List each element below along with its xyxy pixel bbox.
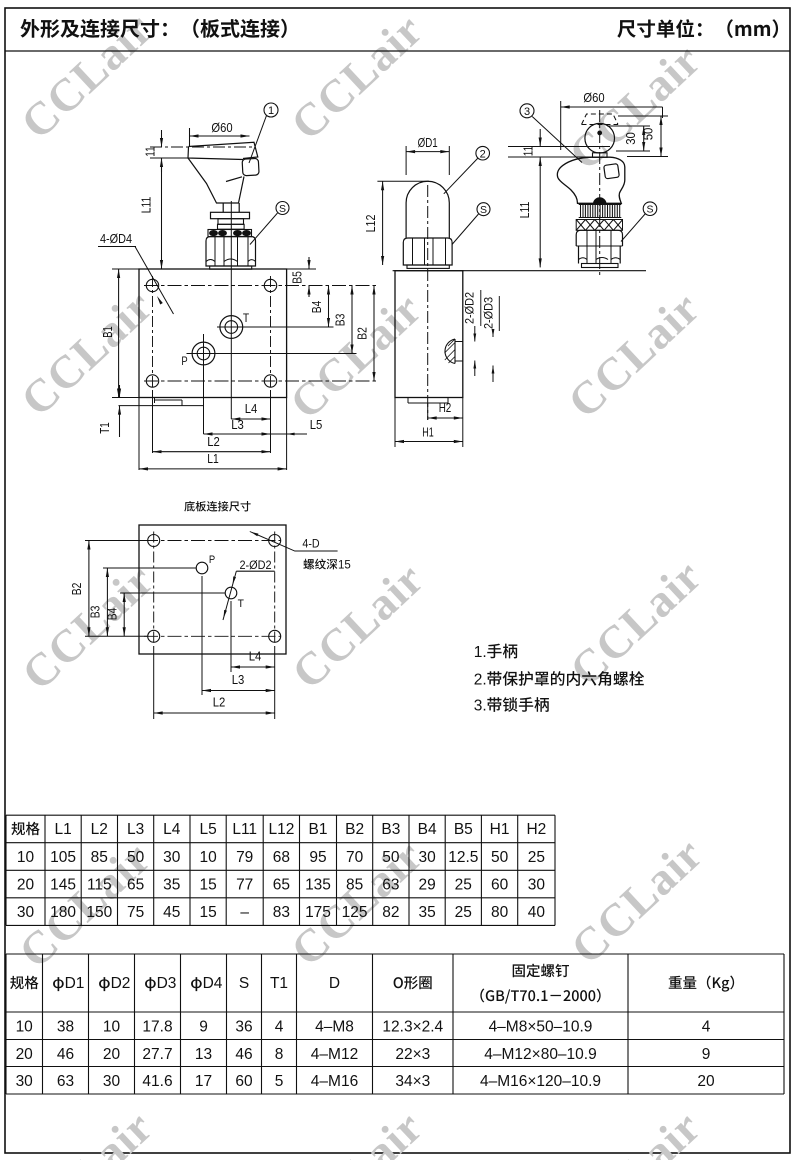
svg-text:L3: L3 [232,673,245,687]
svg-text:45: 45 [163,904,180,921]
svg-text:CCLair: CCLair [558,282,709,428]
svg-text:20: 20 [17,877,35,894]
svg-text:4–M12×80–10.9: 4–M12×80–10.9 [484,1046,596,1063]
svg-text:125: 125 [342,904,368,921]
svg-text:135: 135 [305,877,331,894]
svg-text:P: P [181,356,188,368]
svg-text:H1: H1 [490,821,510,838]
svg-text:77: 77 [236,877,253,894]
svg-text:4–M12: 4–M12 [311,1046,358,1063]
svg-text:CCLair: CCLair [281,1101,432,1160]
svg-text:20: 20 [697,1073,715,1090]
svg-text:35: 35 [163,877,180,894]
svg-text:50: 50 [642,128,656,141]
svg-text:50: 50 [382,849,400,866]
svg-text:75: 75 [127,904,144,921]
svg-text:50: 50 [491,849,509,866]
svg-text:30: 30 [418,849,436,866]
svg-text:20: 20 [103,1046,121,1063]
svg-text:L3: L3 [127,821,144,838]
svg-text:B2: B2 [356,327,370,340]
svg-text:B5: B5 [454,821,473,838]
svg-text:P: P [209,554,215,566]
svg-text:2-ØD2: 2-ØD2 [463,292,477,324]
svg-text:B3: B3 [381,821,400,838]
svg-text:60: 60 [235,1073,253,1090]
svg-text:29: 29 [418,877,435,894]
svg-text:4-D: 4-D [302,537,319,551]
svg-text:L5: L5 [310,418,323,432]
svg-text:10: 10 [16,1018,34,1035]
svg-text:2.: 2. [474,672,487,689]
svg-text:30: 30 [16,1073,34,1090]
svg-text:B1: B1 [101,326,115,338]
svg-text:S: S [480,204,487,216]
svg-text:CCLair: CCLair [559,1101,710,1160]
svg-text:L1: L1 [54,821,71,838]
svg-text:S: S [646,204,653,216]
svg-text:B4: B4 [310,301,324,314]
svg-text:CCLair: CCLair [560,550,711,696]
svg-text:H1: H1 [422,426,434,440]
svg-text:80: 80 [491,904,509,921]
svg-text:13: 13 [195,1046,212,1063]
svg-text:B4: B4 [418,821,437,838]
svg-text:12.5: 12.5 [448,849,478,866]
svg-text:D1: D1 [65,975,85,992]
svg-text:9: 9 [702,1046,711,1063]
svg-text:79: 79 [236,849,253,866]
svg-text:115: 115 [87,877,112,894]
svg-text:S: S [279,203,286,215]
svg-text:4–M16: 4–M16 [311,1073,358,1090]
svg-text:B2: B2 [345,821,364,838]
svg-text:9: 9 [199,1018,208,1035]
svg-text:3.: 3. [474,698,487,715]
svg-text:30: 30 [17,904,35,921]
svg-text:25: 25 [528,849,545,866]
svg-text:2-ØD2: 2-ØD2 [239,558,271,572]
svg-text:H2: H2 [526,821,546,838]
svg-text:175: 175 [305,904,331,921]
svg-text:L4: L4 [245,402,258,416]
svg-text:L12: L12 [364,215,378,233]
svg-text:Ø60: Ø60 [211,121,232,135]
svg-text:82: 82 [382,904,399,921]
svg-text:10: 10 [17,849,35,866]
svg-text:B1: B1 [309,821,328,838]
svg-text:17: 17 [195,1073,212,1090]
svg-text:B3: B3 [334,314,348,327]
svg-text:30: 30 [624,132,638,145]
svg-text:1: 1 [268,105,274,117]
svg-text:L2: L2 [213,696,226,710]
svg-text:4–M16×120–10.9: 4–M16×120–10.9 [480,1073,601,1090]
svg-text:12.3×2.4: 12.3×2.4 [382,1018,443,1035]
svg-text:27.7: 27.7 [142,1046,172,1063]
svg-text:15: 15 [199,904,216,921]
svg-text:CCLair: CCLair [280,283,431,429]
svg-text:83: 83 [273,904,290,921]
svg-text:CCLair: CCLair [281,4,432,150]
svg-text:L1: L1 [207,452,219,466]
svg-text:25: 25 [455,904,472,921]
svg-text:L4: L4 [163,821,181,838]
svg-text:L4: L4 [249,650,262,664]
svg-text:145: 145 [50,877,76,894]
svg-text:105: 105 [50,849,76,866]
svg-text:Ø60: Ø60 [583,91,604,105]
svg-text:B2: B2 [70,583,84,596]
svg-text:36: 36 [235,1018,252,1035]
svg-text:H2: H2 [439,401,452,415]
svg-text:41.6: 41.6 [142,1073,172,1090]
svg-text:46: 46 [235,1046,252,1063]
svg-text:46: 46 [57,1046,74,1063]
svg-text:68: 68 [273,849,290,866]
svg-text:63: 63 [57,1073,74,1090]
svg-text:180: 180 [50,904,76,921]
svg-text:25: 25 [455,877,472,894]
svg-text:4-ØD4: 4-ØD4 [100,232,132,246]
svg-text:10: 10 [199,849,217,866]
svg-text:L5: L5 [199,821,216,838]
svg-text:40: 40 [528,904,546,921]
svg-text:L11: L11 [232,821,257,838]
svg-text:CCLair: CCLair [282,553,433,699]
svg-text:B5: B5 [291,271,305,284]
svg-text:5: 5 [275,1073,284,1090]
svg-text:B4: B4 [106,608,120,621]
svg-text:4–M8×50–10.9: 4–M8×50–10.9 [489,1018,593,1035]
svg-text:L11: L11 [140,197,154,214]
svg-text:CCLair: CCLair [12,554,163,700]
svg-text:150: 150 [86,904,112,921]
svg-text:CCLair: CCLair [11,1101,162,1160]
svg-text:2-ØD3: 2-ØD3 [482,297,496,329]
svg-text:85: 85 [91,849,108,866]
svg-text:T: T [243,313,249,325]
svg-text:30: 30 [103,1073,121,1090]
svg-text:65: 65 [127,877,144,894]
svg-text:65: 65 [273,877,290,894]
svg-text:L2: L2 [91,821,108,838]
svg-text:11: 11 [144,146,158,156]
svg-text:22×3: 22×3 [395,1046,430,1063]
svg-text:2: 2 [480,148,486,160]
svg-text:4: 4 [275,1018,284,1035]
svg-text:CCLair: CCLair [561,828,712,974]
svg-text:–: – [240,904,249,921]
svg-text:1.: 1. [474,644,487,661]
svg-text:60: 60 [491,877,509,894]
svg-text:L2: L2 [207,435,220,449]
svg-text:D2: D2 [111,975,131,992]
svg-text:D: D [329,975,340,992]
svg-text:30: 30 [528,877,546,894]
svg-text:15: 15 [199,877,216,894]
svg-text:30: 30 [163,849,181,866]
svg-text:11: 11 [522,146,536,156]
svg-text:D4: D4 [203,975,223,992]
svg-text:95: 95 [309,849,326,866]
svg-text:70: 70 [346,849,364,866]
svg-text:85: 85 [346,877,363,894]
svg-text:D3: D3 [157,975,177,992]
svg-text:4: 4 [702,1018,711,1035]
svg-text:S: S [239,975,249,992]
svg-text:10: 10 [103,1018,121,1035]
svg-text:B3: B3 [89,606,103,619]
svg-text:8: 8 [275,1046,284,1063]
svg-text:17.8: 17.8 [142,1018,172,1035]
svg-text:20: 20 [16,1046,34,1063]
svg-text:T1: T1 [270,975,288,992]
svg-text:63: 63 [382,877,399,894]
svg-text:L3: L3 [231,418,244,432]
svg-text:L12: L12 [268,821,294,838]
svg-text:34×3: 34×3 [395,1073,430,1090]
svg-text:3: 3 [524,106,530,118]
svg-text:50: 50 [127,849,145,866]
svg-text:15: 15 [338,560,351,572]
svg-text:T: T [238,598,245,610]
svg-text:38: 38 [57,1018,74,1035]
svg-text:35: 35 [418,904,435,921]
svg-text:4–M8: 4–M8 [315,1018,354,1035]
svg-text:ØD1: ØD1 [418,136,438,150]
svg-text:L11: L11 [518,202,532,219]
svg-text:T1: T1 [98,422,112,434]
